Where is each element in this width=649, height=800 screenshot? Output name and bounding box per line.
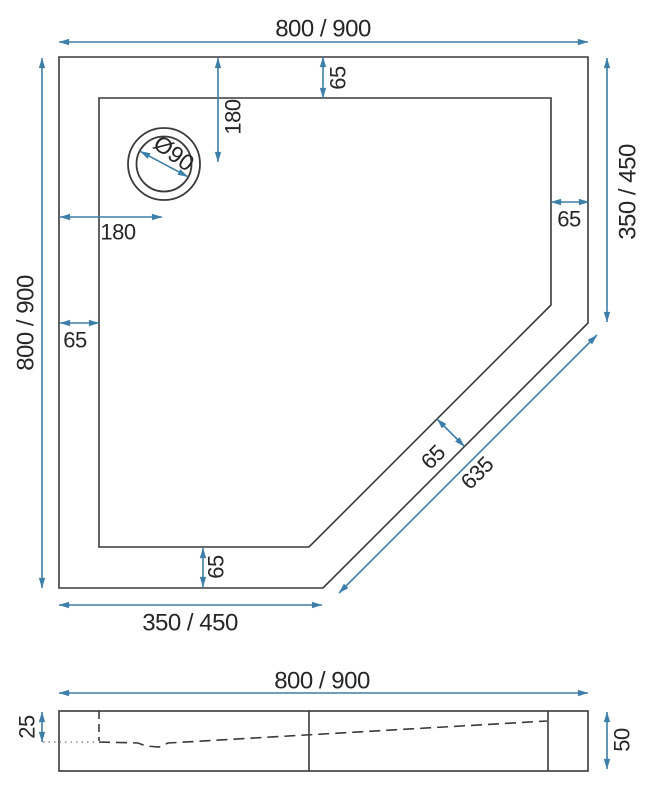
section-body <box>59 711 588 771</box>
plan-view-outlines <box>59 57 588 588</box>
dimension-lines <box>42 42 607 769</box>
plan-right-label: 350 / 450 <box>615 144 642 240</box>
section-depth-label: 25 <box>15 715 40 739</box>
section-width-label: 800 / 900 <box>274 668 370 695</box>
section-height-label: 50 <box>610 728 635 752</box>
rim-left-label: 65 <box>63 328 87 353</box>
rim-top-label: 65 <box>326 66 351 90</box>
tray-outer-edge <box>59 57 588 588</box>
drain-offset-left-label: 180 <box>100 220 135 245</box>
dimension-labels: 800 / 900 800 / 900 65 180 180 65 65 350… <box>13 16 642 752</box>
technical-drawing-canvas: 800 / 900 800 / 900 65 180 180 65 65 350… <box>0 0 649 800</box>
drain-offset-top-label: 180 <box>221 99 246 134</box>
section-floor-slope-dashed <box>99 721 547 747</box>
section-view-outlines <box>59 711 588 771</box>
rim-bottom-label: 65 <box>204 555 229 579</box>
plan-width-label: 800 / 900 <box>275 16 371 43</box>
dim-rim-diagonal-arrow <box>437 419 465 447</box>
plan-height-label: 800 / 900 <box>13 275 40 371</box>
rim-diagonal-label: 65 <box>416 440 450 474</box>
shower-tray-drawing: 800 / 900 800 / 900 65 180 180 65 65 350… <box>0 0 649 800</box>
diagonal-length-label: 635 <box>456 452 499 495</box>
plan-bottom-label: 350 / 450 <box>142 610 238 637</box>
rim-right-label: 65 <box>557 207 581 232</box>
